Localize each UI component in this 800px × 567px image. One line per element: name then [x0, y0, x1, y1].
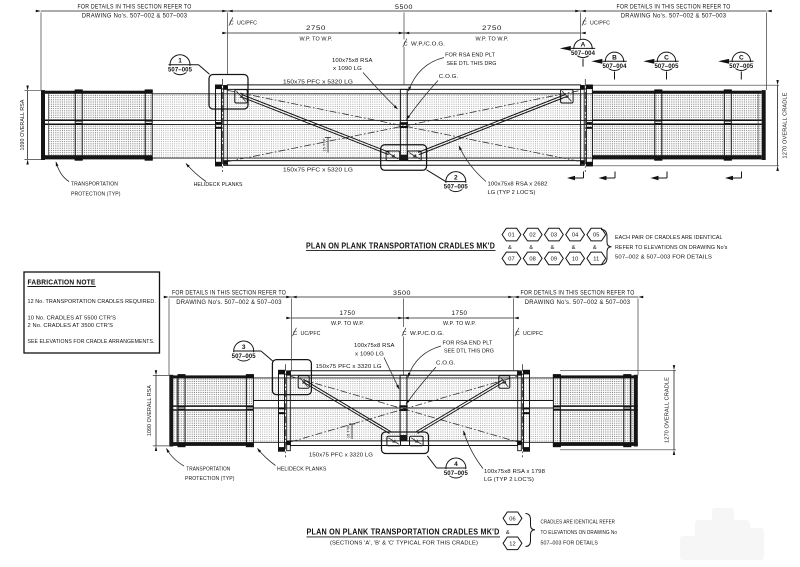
svg-text:LG (TYP 2 LOC'S): LG (TYP 2 LOC'S)	[488, 190, 536, 196]
svg-text:EACH PAIR OF CRADLES ARE IDENT: EACH PAIR OF CRADLES ARE IDENTICAL	[615, 235, 723, 241]
svg-text:C: C	[739, 54, 744, 61]
svg-text:CRADLES ARE IDENTICAL REFER: CRADLES ARE IDENTICAL REFER	[541, 519, 616, 525]
svg-text:&: &	[572, 245, 576, 251]
svg-text:07: 07	[508, 257, 515, 263]
svg-text:150x75 PFC x 3320 LG: 150x75 PFC x 3320 LG	[309, 453, 373, 459]
svg-text:12: 12	[509, 541, 516, 547]
svg-text:2 No. CRADLES AT 3500 CTR'S: 2 No. CRADLES AT 3500 CTR'S	[28, 323, 114, 329]
svg-text:W.P. TO W.P.: W.P. TO W.P.	[331, 321, 364, 327]
svg-text:1270 OVERALL CRADLE: 1270 OVERALL CRADLE	[783, 92, 789, 158]
svg-text:&: &	[508, 245, 512, 251]
svg-text:PLAN ON PLANK TRANSPORTATION C: PLAN ON PLANK TRANSPORTATION CRADLES MK'…	[306, 240, 495, 250]
svg-text:100x75x8 RSA x 1798: 100x75x8 RSA x 1798	[484, 469, 545, 475]
svg-text:FOR RSA END PLT: FOR RSA END PLT	[445, 53, 495, 59]
svg-text:C: C	[664, 54, 669, 61]
svg-text:507–005: 507–005	[729, 64, 754, 70]
svg-text:&: &	[593, 245, 597, 251]
svg-text:DRAWING No's. 507–002 & 507–00: DRAWING No's. 507–002 & 507–003	[176, 300, 282, 306]
svg-text:HELIDECK PLANKS: HELIDECK PLANKS	[277, 466, 327, 472]
svg-text:FOR DETAILS IN THIS SECTION RE: FOR DETAILS IN THIS SECTION REFER TO	[617, 5, 731, 11]
svg-text:FOR DETAILS IN THIS SECTION RE: FOR DETAILS IN THIS SECTION REFER TO	[172, 291, 286, 297]
svg-text:15 TYP: 15 TYP	[347, 425, 351, 439]
svg-text:(SECTIONS 'A', 'B' & 'C' TYPIC: (SECTIONS 'A', 'B' & 'C' TYPICAL FOR THI…	[330, 540, 478, 546]
svg-text:A: A	[581, 41, 586, 48]
svg-text:SEE ELEVATIONS FOR CRADLE ARRA: SEE ELEVATIONS FOR CRADLE ARRANGEMENTS.	[28, 339, 155, 345]
svg-text:2: 2	[454, 174, 458, 181]
svg-text:FABRICATION NOTE: FABRICATION NOTE	[28, 279, 96, 286]
svg-text:04: 04	[572, 233, 579, 239]
svg-text:10: 10	[572, 257, 579, 263]
svg-text:W.P. TO W.P.: W.P. TO W.P.	[476, 37, 509, 43]
svg-text:1750: 1750	[452, 310, 468, 317]
svg-text:PROTECTION (TYP): PROTECTION (TYP)	[185, 476, 235, 482]
svg-text:C.O.G.: C.O.G.	[436, 361, 456, 367]
svg-text:DRAWING No's. 507–002 & 507–00: DRAWING No's. 507–002 & 507–003	[525, 300, 631, 306]
svg-text:02: 02	[529, 233, 536, 239]
svg-text:TRANSPORTATION: TRANSPORTATION	[186, 466, 230, 472]
svg-text:507–005: 507–005	[654, 64, 679, 70]
svg-text:B: B	[612, 54, 617, 61]
svg-text:507–005: 507–005	[444, 471, 469, 477]
svg-text:1270 OVERALL CRADLE: 1270 OVERALL CRADLE	[665, 377, 671, 443]
svg-text:W.P. TO W.P.: W.P. TO W.P.	[443, 321, 476, 327]
svg-text:100x75x8 RSA: 100x75x8 RSA	[354, 343, 395, 349]
svg-text:06: 06	[509, 516, 516, 522]
svg-text:SEE DTL THIS DRG: SEE DTL THIS DRG	[447, 61, 497, 67]
svg-text:W.P./C.O.G.: W.P./C.O.G.	[410, 331, 444, 337]
svg-text:2750: 2750	[482, 25, 502, 32]
svg-text:150x75 PFC x 3320 LG: 150x75 PFC x 3320 LG	[316, 364, 382, 370]
svg-text:LG (TYP 2 LOC'S): LG (TYP 2 LOC'S)	[484, 477, 534, 483]
svg-text:W.P. TO W.P.: W.P. TO W.P.	[300, 37, 333, 43]
svg-text:03: 03	[551, 233, 558, 239]
svg-text:507–005: 507–005	[232, 354, 257, 360]
svg-text:08: 08	[529, 257, 536, 263]
svg-text:150x75 PFC x 5320 LG: 150x75 PFC x 5320 LG	[283, 167, 353, 173]
svg-text:SEE DTL THIS DRG: SEE DTL THIS DRG	[444, 349, 494, 355]
svg-text:DRAWING No's. 507–002 & 507–00: DRAWING No's. 507–002 & 507–003	[621, 14, 727, 20]
svg-text:507–004: 507–004	[602, 64, 627, 70]
svg-text:150x75 PFC x 5320 LG: 150x75 PFC x 5320 LG	[283, 80, 353, 86]
svg-text:507–003 FOR DETAILS: 507–003 FOR DETAILS	[541, 541, 599, 547]
svg-text:1090 OVERALL RSA: 1090 OVERALL RSA	[20, 99, 26, 150]
svg-text:FOR DETAILS IN THIS SECTION RE: FOR DETAILS IN THIS SECTION REFER TO	[521, 291, 635, 297]
svg-text:1750: 1750	[340, 310, 356, 317]
svg-text:5500: 5500	[395, 4, 413, 11]
svg-text:&: &	[506, 530, 510, 536]
svg-text:2750: 2750	[306, 25, 326, 32]
svg-text:HELIDECK PLANKS: HELIDECK PLANKS	[194, 182, 243, 188]
svg-text:FOR DETAILS IN THIS SECTION RE: FOR DETAILS IN THIS SECTION REFER TO	[78, 5, 192, 11]
svg-text:11: 11	[593, 257, 599, 263]
svg-text:1: 1	[178, 58, 182, 65]
svg-text:PLAN ON PLANK TRANSPORTATION C: PLAN ON PLANK TRANSPORTATION CRADLES MK'…	[307, 527, 500, 537]
svg-text:507–005: 507–005	[168, 68, 193, 74]
svg-text:W.P./C.O.G.: W.P./C.O.G.	[411, 42, 445, 48]
svg-text:C.O.G.: C.O.G.	[439, 74, 459, 80]
svg-text:&: &	[550, 245, 554, 251]
svg-text:12 No. TRANSPORTATION CRADLES: 12 No. TRANSPORTATION CRADLES REQUIRED.	[28, 299, 157, 305]
svg-text:1090 OVERALL RSA: 1090 OVERALL RSA	[147, 385, 153, 436]
svg-text:TRANSPORTATION: TRANSPORTATION	[71, 182, 118, 188]
svg-text:UC/PFC: UC/PFC	[523, 331, 543, 337]
svg-text:PROTECTION (TYP): PROTECTION (TYP)	[71, 191, 121, 197]
svg-text:&: &	[529, 245, 533, 251]
svg-text:REFER TO ELEVATIONS ON DRAWING: REFER TO ELEVATIONS ON DRAWING No's	[615, 245, 728, 251]
svg-text:TO ELEVATIONS ON DRAWING No: TO ELEVATIONS ON DRAWING No	[541, 530, 618, 536]
svg-text:UC/PFC: UC/PFC	[590, 20, 610, 26]
svg-text:09: 09	[551, 257, 558, 263]
svg-text:FOR RSA END PLT: FOR RSA END PLT	[443, 340, 493, 346]
svg-text:507–002 & 507–003 FOR DETAILS: 507–002 & 507–003 FOR DETAILS	[615, 254, 712, 260]
svg-text:507–004: 507–004	[571, 51, 596, 57]
svg-text:UC/PFC: UC/PFC	[237, 20, 257, 26]
svg-text:507–005: 507–005	[444, 185, 469, 191]
svg-text:3500: 3500	[393, 290, 411, 297]
svg-text:10 No. CRADLES AT 5500 CTR'S: 10 No. CRADLES AT 5500 CTR'S	[28, 315, 117, 321]
svg-text:15 TYP: 15 TYP	[323, 138, 327, 152]
svg-text:4: 4	[454, 461, 458, 468]
svg-text:DRAWING No's. 507–002 & 507–00: DRAWING No's. 507–002 & 507–003	[82, 14, 188, 20]
svg-text:05: 05	[593, 233, 600, 239]
svg-text:x 1090 LG: x 1090 LG	[333, 66, 362, 72]
svg-text:100x75x8 RSA x 2682: 100x75x8 RSA x 2682	[488, 181, 548, 187]
svg-text:100x75x8 RSA: 100x75x8 RSA	[332, 58, 373, 64]
svg-text:UC/PFC: UC/PFC	[301, 331, 321, 337]
svg-text:3: 3	[242, 344, 246, 351]
svg-text:01: 01	[508, 233, 515, 239]
svg-text:x 1090 LG: x 1090 LG	[355, 351, 384, 357]
